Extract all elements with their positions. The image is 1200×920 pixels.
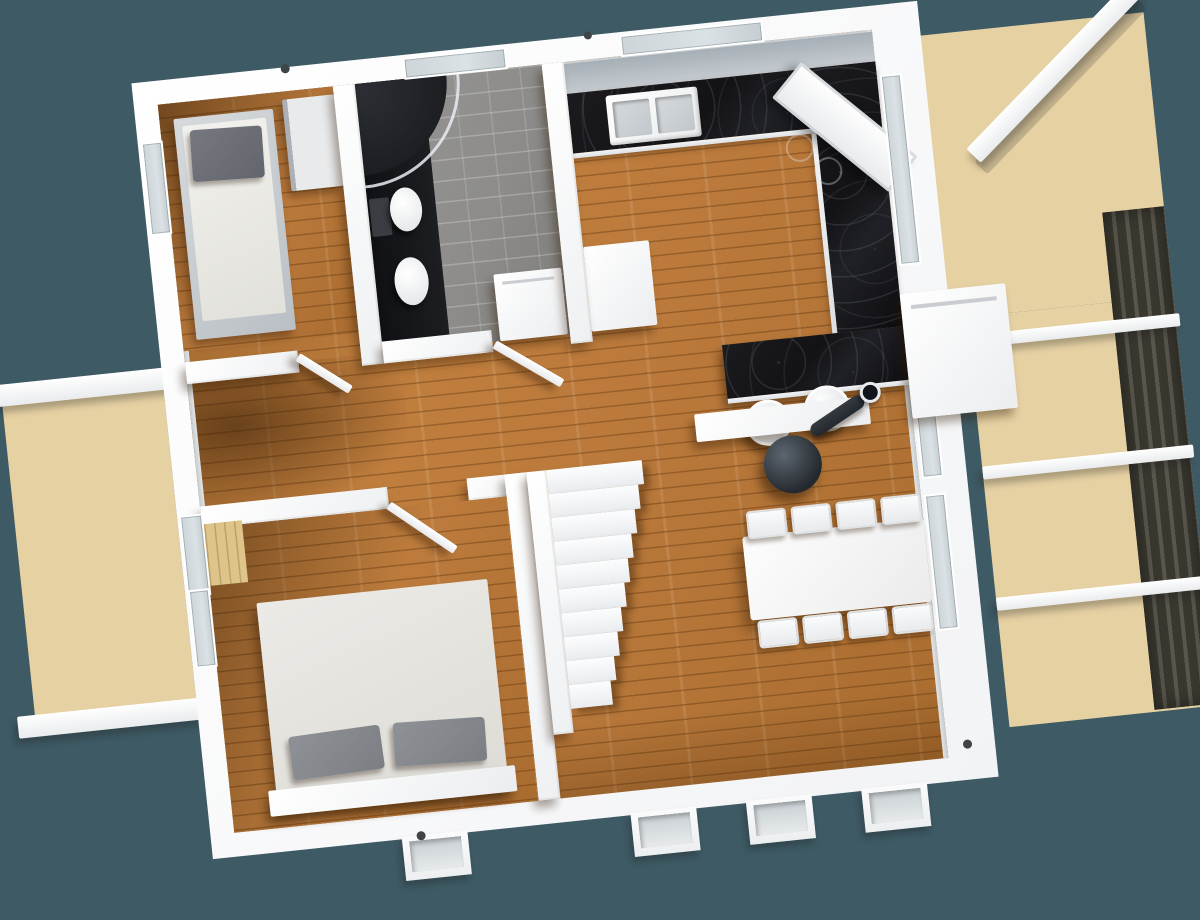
dining-chair	[802, 612, 845, 644]
dining-chair	[835, 498, 878, 530]
kitchen-sink	[605, 86, 702, 145]
bay-window-volume	[900, 283, 1018, 418]
facade-window-recess	[402, 830, 472, 881]
dining-chair	[891, 603, 934, 635]
washing-machine	[493, 268, 568, 342]
dining-chair	[880, 493, 923, 525]
facade-window-recess	[746, 794, 816, 845]
stair-step	[569, 681, 613, 709]
house	[131, 1, 998, 859]
terrace-left-deck	[2, 382, 197, 717]
toilet-tank	[369, 197, 393, 237]
single-bed-pillow	[190, 125, 265, 182]
dining-chair	[790, 503, 833, 535]
dining-chair	[757, 617, 800, 649]
facade-window-recess	[630, 806, 700, 857]
kitchen-island-cabinet	[583, 240, 658, 331]
dining-chair	[847, 607, 890, 639]
facade-window-recess	[861, 782, 931, 833]
double-bed-pillow-right	[392, 717, 487, 767]
wardrobe	[282, 94, 343, 191]
doormat	[204, 520, 248, 586]
dining-chair	[746, 507, 789, 539]
floor-plan-render	[0, 0, 1200, 896]
